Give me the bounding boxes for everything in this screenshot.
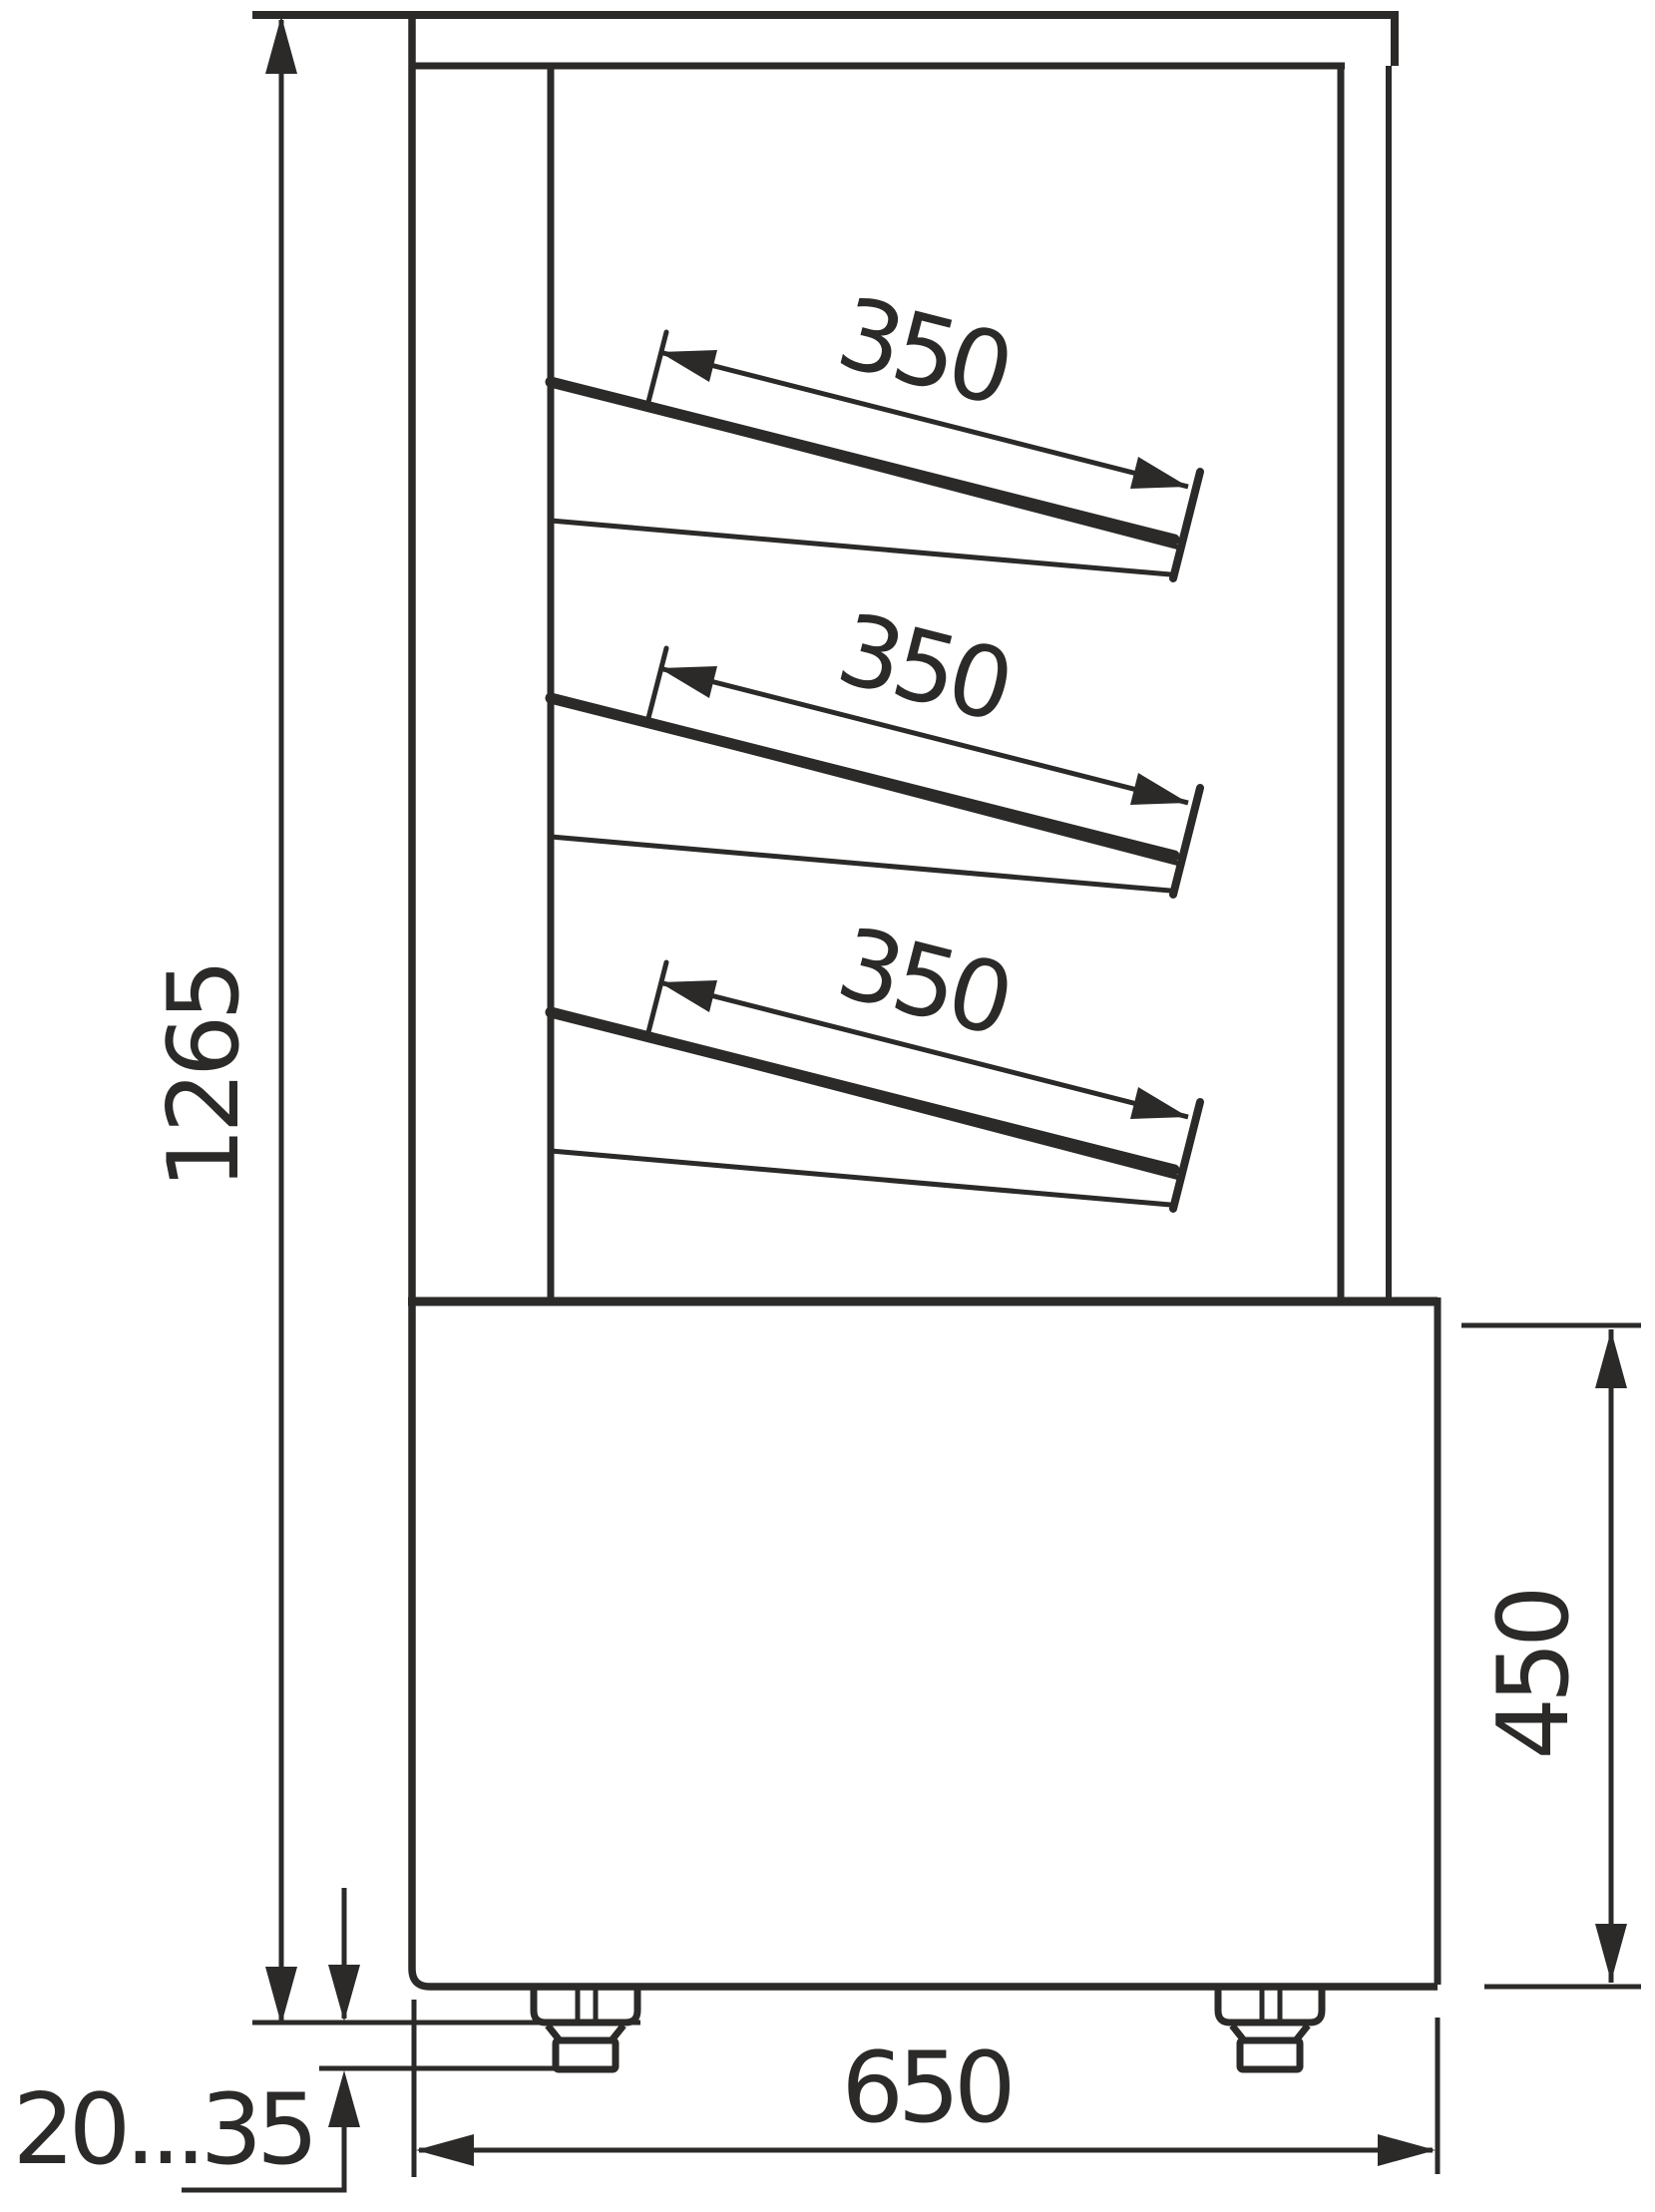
dim-extension-tick xyxy=(648,332,666,402)
dim-base-height-label: 450 xyxy=(1477,1591,1591,1759)
dim-extension-tick xyxy=(648,648,666,718)
dim-arrowhead-right xyxy=(1378,2134,1436,2166)
foot-bracket xyxy=(534,1987,637,2023)
shelf-3: 350 xyxy=(551,907,1200,1209)
dim-arrowhead-right xyxy=(1130,457,1188,489)
foot-screw-lines xyxy=(578,1987,596,2021)
technical-drawing-page: 350 350 350 1265 20 xyxy=(0,0,1655,2212)
shelf-bracket-line xyxy=(551,837,1170,891)
dim-extension-tick xyxy=(648,962,666,1032)
shelf-2: 350 xyxy=(551,592,1200,895)
dim-shelf-depth-label: 350 xyxy=(827,907,1019,1058)
dim-arrowhead-left xyxy=(416,2134,474,2166)
dim-shelf-depth-label: 350 xyxy=(827,592,1019,744)
shelf-bracket-line xyxy=(551,521,1170,574)
shelf-underside-line xyxy=(648,725,1179,864)
dim-base-height: 450 xyxy=(1461,1325,1641,1987)
dim-arrowhead-up xyxy=(265,16,297,74)
dim-base-width: 650 xyxy=(414,2000,1438,2177)
dim-arrowhead-left xyxy=(659,980,717,1012)
dim-arrowhead-down xyxy=(265,1967,297,2025)
foot-pad xyxy=(556,2040,616,2069)
foot-bracket xyxy=(1218,1987,1322,2023)
foot-pad xyxy=(1240,2040,1300,2069)
dim-arrowhead-up xyxy=(1595,1330,1627,1388)
display-case-side-view-drawing: 350 350 350 1265 20 xyxy=(0,0,1655,2212)
dim-arrowhead-left xyxy=(659,350,717,382)
shelf-1: 350 xyxy=(551,276,1200,578)
shelf-bracket-line xyxy=(551,1151,1170,1205)
shelf-underside-line xyxy=(648,1039,1179,1178)
dim-arrowhead-up xyxy=(328,2070,360,2127)
dim-foot-adjustment-label: 20...35 xyxy=(13,2073,313,2187)
dim-arrowhead-left xyxy=(659,666,717,698)
dim-foot-adjustment: 20...35 xyxy=(13,1888,640,2190)
dim-shelf-depth-label: 350 xyxy=(827,276,1019,428)
foot-screw-lines xyxy=(1262,1987,1280,2021)
dim-arrowhead-down xyxy=(1595,1924,1627,1982)
dim-overall-height: 1265 xyxy=(148,16,297,2025)
foot-right xyxy=(1218,1987,1322,2069)
shelf-underside-line xyxy=(648,409,1179,548)
dim-arrowhead-right xyxy=(1130,1087,1188,1119)
dim-arrowhead-down xyxy=(328,1965,360,2022)
dim-overall-height-label: 1265 xyxy=(148,964,261,1189)
dim-arrowhead-right xyxy=(1130,773,1188,805)
dim-base-width-label: 650 xyxy=(841,2031,1010,2145)
foot-left xyxy=(534,1987,637,2069)
